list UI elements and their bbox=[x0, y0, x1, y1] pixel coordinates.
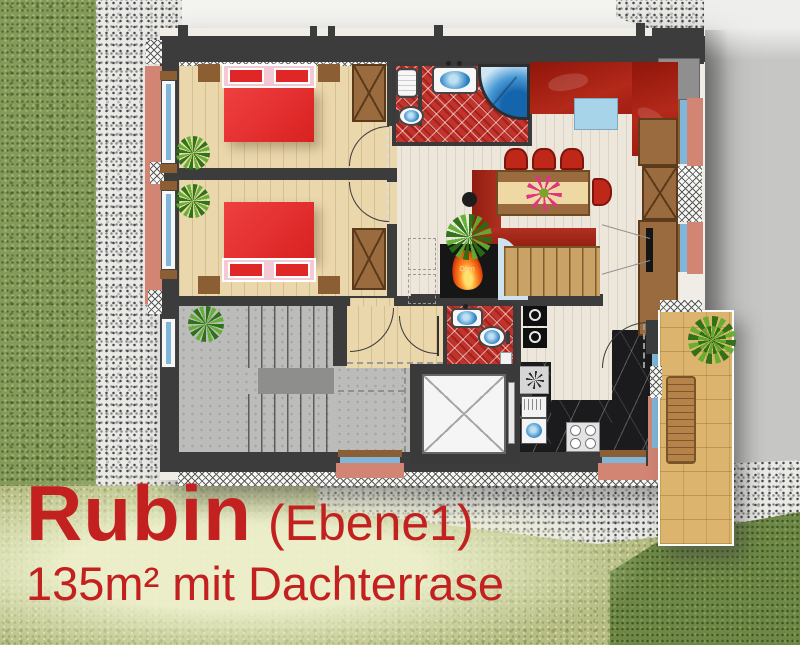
plant-bedroom-1 bbox=[176, 136, 210, 170]
stairs-landing bbox=[258, 368, 334, 394]
wall-corridor-left-stub bbox=[333, 302, 347, 366]
wall-top bbox=[160, 36, 705, 62]
nightstand bbox=[318, 276, 340, 294]
kitchen-sink-basin bbox=[526, 423, 542, 438]
pillow bbox=[228, 262, 264, 278]
nightstand bbox=[318, 64, 340, 82]
dashed-annotation bbox=[408, 274, 436, 304]
stairs-flight-upper bbox=[248, 306, 334, 368]
fan-icon bbox=[526, 371, 544, 389]
wall-post bbox=[310, 26, 317, 37]
vestibule-dashed-line bbox=[404, 368, 406, 452]
coffee-table bbox=[574, 98, 618, 130]
cabinet-right bbox=[642, 166, 678, 220]
tv bbox=[646, 228, 653, 272]
page-subtitle: 135m² mit Dachterrase bbox=[26, 560, 626, 608]
pillow bbox=[274, 68, 310, 84]
toilet-bath-2-bowl bbox=[484, 330, 500, 344]
stool-knob bbox=[462, 192, 477, 207]
dining-chair bbox=[504, 148, 528, 170]
page-title: Rubin bbox=[26, 469, 252, 557]
sun-lounger bbox=[666, 376, 696, 464]
window-glass-stairwell bbox=[166, 322, 171, 364]
burner-icon bbox=[585, 438, 596, 449]
faucet-dot bbox=[457, 61, 462, 66]
toilet-bath-2-tank bbox=[506, 331, 510, 344]
window-sill bbox=[160, 270, 177, 279]
bed-2-blanket bbox=[224, 202, 314, 260]
plant-bedroom-2 bbox=[176, 184, 210, 218]
caption: Rubin(Ebene1) 135m² mit Dachterrase bbox=[26, 474, 626, 607]
facade-right-1 bbox=[687, 98, 703, 166]
wardrobe-bedroom-2 bbox=[352, 228, 386, 290]
toilet-bath-1-tank bbox=[395, 110, 399, 123]
elevator-cab bbox=[422, 374, 506, 454]
plant-fireplace bbox=[446, 214, 492, 260]
window-glass-bedroom-2 bbox=[166, 194, 171, 266]
dining-chair bbox=[532, 148, 556, 170]
washer-drum-icon bbox=[529, 309, 541, 321]
towel-shelf bbox=[396, 68, 418, 98]
door-gap-stairwell bbox=[350, 298, 394, 306]
plant-stairwell bbox=[188, 306, 224, 342]
dashed-annotation bbox=[408, 238, 436, 270]
wall-post bbox=[434, 25, 443, 37]
facade-right-2 bbox=[687, 222, 703, 274]
flower-centerpiece bbox=[526, 175, 562, 211]
burner-icon bbox=[585, 425, 596, 436]
insulation-terrace-left bbox=[650, 366, 662, 398]
burner-icon bbox=[570, 425, 581, 436]
insulation-left-1 bbox=[146, 40, 162, 64]
wall-post bbox=[328, 26, 335, 37]
wall-post bbox=[178, 25, 188, 37]
sink-bath-1-basin bbox=[440, 71, 470, 89]
window-sill bbox=[160, 164, 177, 173]
pillow bbox=[274, 262, 310, 278]
insulation-right bbox=[676, 166, 702, 222]
window-sill bbox=[160, 181, 177, 190]
window-glass-bedroom-1 bbox=[166, 84, 171, 160]
window-sill bbox=[160, 71, 177, 80]
wall-post bbox=[636, 23, 645, 37]
insulation-left-3 bbox=[148, 290, 162, 314]
vestibule-dashed-line bbox=[338, 390, 404, 392]
dishwasher-grille bbox=[524, 399, 544, 410]
stairs-flight-lower bbox=[248, 394, 334, 454]
burner-icon bbox=[570, 438, 581, 449]
dining-chair-end bbox=[592, 178, 612, 206]
nightstand bbox=[198, 276, 220, 294]
page-title-level: (Ebene1) bbox=[268, 495, 474, 551]
dining-chair bbox=[560, 148, 584, 170]
toilet-bath-1-bowl bbox=[404, 110, 419, 122]
wardrobe-bedroom-1 bbox=[352, 64, 386, 122]
nightstand bbox=[198, 64, 220, 82]
elevator-door bbox=[508, 382, 515, 444]
floorplan-scene: Ofen bbox=[0, 0, 800, 645]
sideboard-right-1 bbox=[638, 118, 678, 166]
pillow bbox=[228, 68, 264, 84]
sink-bath-2-basin bbox=[457, 311, 477, 325]
door-leaf bbox=[437, 316, 439, 356]
window-right-1 bbox=[680, 100, 687, 164]
dryer-drum-icon bbox=[529, 331, 541, 343]
fireplace-label: Ofen bbox=[452, 266, 482, 273]
window-right-2 bbox=[680, 224, 687, 272]
caption-line-1: Rubin(Ebene1) bbox=[26, 474, 626, 554]
window-sill-bottom-1 bbox=[338, 450, 402, 457]
vestibule-floor bbox=[335, 366, 411, 454]
insulation-terrace-top bbox=[660, 300, 702, 312]
faucet-dot bbox=[463, 304, 468, 309]
faucet-dot bbox=[446, 61, 451, 66]
stairs-up-living bbox=[504, 246, 600, 296]
bed-1-blanket bbox=[224, 88, 314, 142]
terrace-door-dashed bbox=[643, 324, 645, 368]
